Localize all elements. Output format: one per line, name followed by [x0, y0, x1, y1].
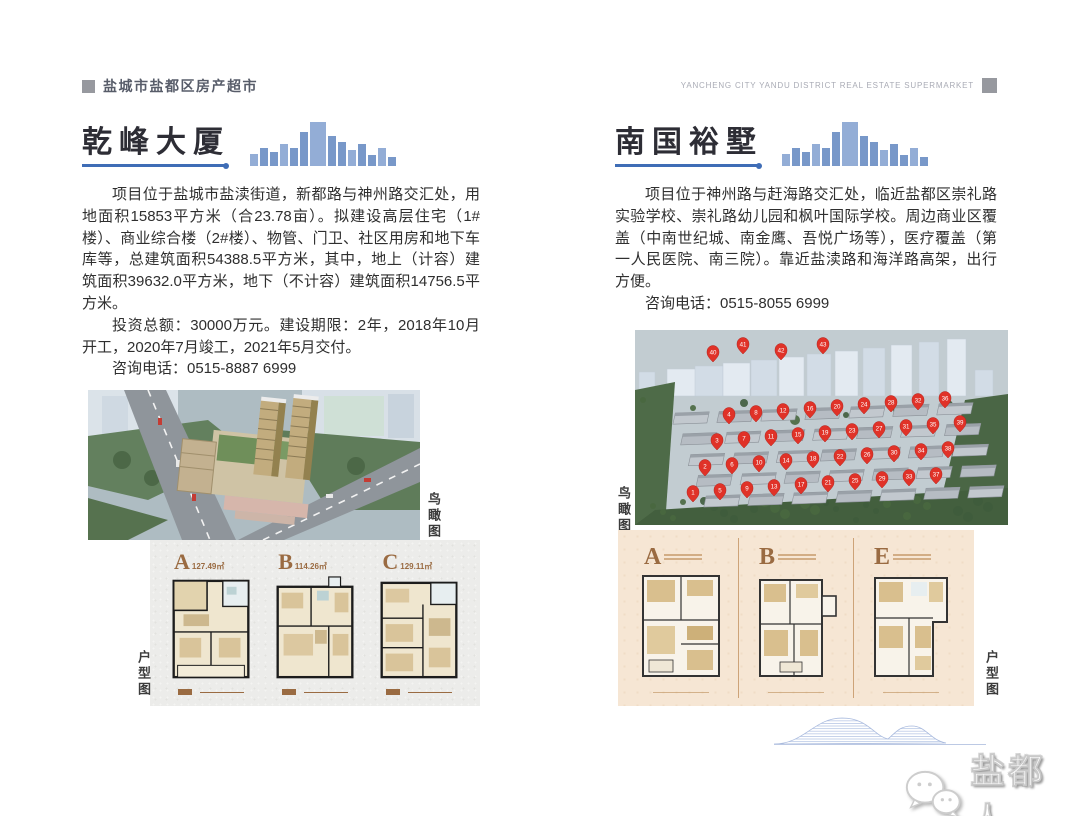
left-floorplan-label: 户型图 — [134, 650, 153, 698]
svg-text:29: 29 — [879, 475, 886, 482]
header-right-title: YANCHENG CITY YANDU DISTRICT REAL ESTATE… — [681, 81, 974, 90]
right-floorplan-label: 户型图 — [982, 650, 1001, 698]
svg-text:15: 15 — [795, 431, 802, 438]
floorplan-legend — [178, 688, 244, 696]
floorplan-legend — [282, 688, 348, 696]
svg-text:16: 16 — [807, 405, 814, 412]
svg-text:9: 9 — [745, 485, 749, 492]
svg-text:25: 25 — [852, 477, 859, 484]
floorplan-card-a: A 127.49㎡ — [164, 550, 258, 696]
svg-text:26: 26 — [864, 451, 871, 458]
header-square-icon — [82, 80, 95, 93]
floorplan-spec-lines — [893, 554, 931, 560]
svg-text:5: 5 — [718, 487, 722, 494]
floorplan-drawing — [635, 570, 727, 682]
floorplan-drawing — [865, 570, 957, 682]
floorplan-area: 127.49㎡ — [192, 561, 224, 572]
floorplan-letter: B — [759, 546, 775, 568]
svg-text:42: 42 — [778, 347, 785, 354]
left-paragraph-2: 投资总额：30000万元。建设期限：2年，2018年10月开工，2020年7月竣… — [82, 315, 480, 359]
left-floorplan-image: A 127.49㎡ B 114.26㎡ — [150, 540, 480, 706]
right-aerial-photo: 1234567891011121314151617181920212223242… — [635, 330, 1008, 525]
svg-text:14: 14 — [783, 457, 790, 464]
svg-text:10: 10 — [756, 459, 763, 466]
floorplan-card-c: C 129.11㎡ — [372, 550, 466, 696]
svg-text:20: 20 — [834, 403, 841, 410]
right-description: 项目位于神州路与赶海路交汇处，临近盐都区崇礼路实验学校、崇礼路幼儿园和枫叶国际学… — [615, 184, 997, 315]
floorplan-section-e: E — [853, 538, 968, 698]
floorplan-area: 114.26㎡ — [295, 561, 327, 572]
svg-text:12: 12 — [780, 407, 787, 414]
right-floorplan-image: A B — [618, 530, 974, 706]
svg-text:37: 37 — [933, 471, 940, 478]
floorplan-drawing — [271, 575, 359, 685]
header-square-icon — [982, 78, 997, 93]
svg-text:8: 8 — [754, 409, 758, 416]
floorplan-drawing — [375, 575, 463, 685]
svg-text:35: 35 — [930, 421, 937, 428]
right-phone-line: 咨询电话：0515-8055 6999 — [615, 293, 997, 315]
svg-text:2: 2 — [703, 463, 707, 470]
svg-text:31: 31 — [903, 423, 910, 430]
right-title-block: 南国裕墅 — [615, 126, 763, 167]
floorplan-card-b: B 114.26㎡ — [268, 550, 362, 696]
svg-text:22: 22 — [837, 453, 844, 460]
wechat-icon — [903, 766, 963, 816]
floorplan-legend — [386, 688, 452, 696]
svg-text:1: 1 — [691, 489, 695, 496]
floorplan-section-b: B — [738, 538, 853, 698]
floorplan-letter: B — [278, 552, 293, 572]
floorplan-area: 129.11㎡ — [400, 561, 432, 572]
svg-text:6: 6 — [730, 461, 734, 468]
right-aerial-label: 鸟瞰图 — [614, 486, 633, 534]
right-page-title: 南国裕墅 — [615, 126, 763, 160]
brand-name: 盐都人 — [971, 744, 1080, 816]
svg-text:41: 41 — [740, 341, 747, 348]
svg-text:17: 17 — [798, 481, 805, 488]
brand-logo: 盐都人 — [903, 744, 1080, 816]
svg-text:7: 7 — [742, 435, 746, 442]
svg-text:24: 24 — [861, 401, 868, 408]
header-left: 盐城市盐都区房产超市 — [82, 76, 258, 96]
svg-text:13: 13 — [771, 483, 778, 490]
floorplan-letter: A — [644, 546, 661, 568]
svg-text:40: 40 — [710, 349, 717, 356]
floorplan-caption-lines — [768, 686, 824, 693]
svg-text:3: 3 — [715, 437, 719, 444]
svg-text:19: 19 — [822, 429, 829, 436]
left-title-block: 乾峰大厦 — [82, 126, 230, 167]
svg-text:39: 39 — [957, 419, 964, 426]
header-left-title: 盐城市盐都区房产超市 — [103, 76, 258, 96]
svg-text:21: 21 — [825, 479, 832, 486]
skyline-graphic — [780, 116, 930, 168]
floorplan-caption-lines — [653, 686, 709, 693]
right-paragraph-1: 项目位于神州路与赶海路交汇处，临近盐都区崇礼路实验学校、崇礼路幼儿园和枫叶国际学… — [615, 184, 997, 293]
left-description: 项目位于盐城市盐渎街道，新都路与神州路交汇处，用地面积15853平方米（合23.… — [82, 184, 480, 380]
svg-text:27: 27 — [876, 425, 883, 432]
floorplan-drawing — [167, 575, 255, 685]
left-page-title: 乾峰大厦 — [82, 126, 230, 160]
floorplan-letter: A — [174, 552, 190, 572]
svg-text:33: 33 — [906, 473, 913, 480]
left-aerial-photo — [88, 390, 420, 540]
floorplan-caption-lines — [883, 686, 939, 693]
svg-text:38: 38 — [945, 445, 952, 452]
title-underline — [82, 164, 225, 167]
floorplan-letter: E — [874, 546, 890, 568]
svg-text:30: 30 — [891, 449, 898, 456]
svg-text:34: 34 — [918, 447, 925, 454]
header-right: YANCHENG CITY YANDU DISTRICT REAL ESTATE… — [681, 78, 997, 93]
left-aerial-label: 鸟瞰图 — [424, 492, 443, 540]
brochure-spread: 盐城市盐都区房产超市 YANCHENG CITY YANDU DISTRICT … — [0, 0, 1080, 816]
svg-text:28: 28 — [888, 399, 895, 406]
floorplan-section-a: A — [624, 538, 738, 698]
svg-text:23: 23 — [849, 427, 856, 434]
svg-text:4: 4 — [727, 411, 731, 418]
svg-text:36: 36 — [942, 395, 949, 402]
svg-text:32: 32 — [915, 397, 922, 404]
floorplan-drawing — [750, 570, 842, 682]
floorplan-spec-lines — [778, 554, 816, 560]
svg-text:18: 18 — [810, 455, 817, 462]
svg-text:43: 43 — [820, 341, 827, 348]
left-phone-line: 咨询电话：0515-8887 6999 — [82, 358, 480, 380]
svg-text:11: 11 — [768, 433, 775, 440]
floorplan-spec-lines — [664, 554, 702, 560]
skyline-graphic — [248, 116, 398, 168]
left-paragraph-1: 项目位于盐城市盐渎街道，新都路与神州路交汇处，用地面积15853平方米（合23.… — [82, 184, 480, 315]
title-underline — [615, 164, 758, 167]
floorplan-letter: C — [382, 552, 398, 572]
